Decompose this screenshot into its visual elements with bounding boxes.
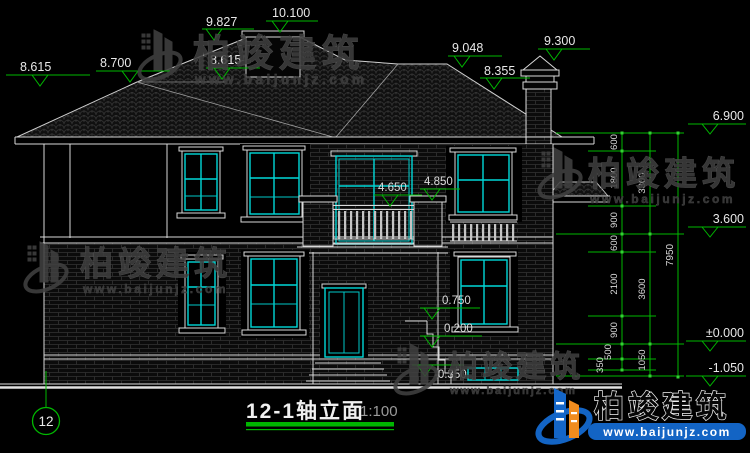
marker-minus1050: -1.050 (686, 361, 746, 386)
svg-text:10.100: 10.100 (272, 6, 310, 20)
svg-text:600: 600 (609, 134, 620, 150)
brand-url: www.baijunjz.com (602, 425, 731, 439)
svg-text:柏竣建筑: 柏竣建筑 (448, 350, 584, 384)
window-2f-2 (240, 144, 310, 224)
axis-number: 12 (38, 414, 53, 429)
svg-text:9.048: 9.048 (452, 41, 483, 55)
svg-text:3600: 3600 (637, 278, 648, 299)
balcony-railing (331, 206, 417, 245)
window-2f-1 (176, 145, 226, 222)
svg-text:9.827: 9.827 (206, 15, 237, 29)
brand-logo-icon (534, 388, 594, 448)
svg-text:±0.000: ±0.000 (706, 326, 744, 340)
svg-text:3.600: 3.600 (713, 212, 744, 226)
marker-3600: 3.600 (688, 212, 746, 237)
marker-9300: 9.300 (538, 34, 590, 60)
entrance-door (320, 283, 368, 358)
eave-fascia (15, 137, 594, 144)
brand-name: 柏竣建筑 (594, 390, 730, 424)
svg-text:8.700: 8.700 (100, 56, 131, 70)
window-guard-rail (450, 222, 517, 241)
window-2f-3 (446, 146, 522, 241)
title-underline-thin (246, 429, 394, 430)
view-title: 12-1轴立面 (246, 399, 365, 423)
title-block: 12-1轴立面 1:100 (246, 399, 398, 430)
svg-text:900: 900 (609, 322, 620, 338)
svg-text:-1.050: -1.050 (709, 361, 744, 375)
svg-text:8.355: 8.355 (484, 64, 515, 78)
title-underline-thick (246, 422, 394, 427)
svg-text:www.baijunjz.com: www.baijunjz.com (589, 192, 735, 206)
balcony-pier-left (299, 196, 337, 246)
svg-text:0.750: 0.750 (442, 295, 471, 307)
window-1f-2 (241, 250, 309, 338)
svg-text:0.200: 0.200 (444, 323, 473, 335)
marker-6900: 6.900 (688, 109, 746, 134)
brand-logo: 柏竣建筑 www.baijunjz.com (534, 388, 746, 448)
svg-text:9.300: 9.300 (544, 34, 575, 48)
elevation-drawing-canvas: 600 1800 900 600 2100 900 500 350 3300 3… (0, 0, 750, 453)
svg-text:6.900: 6.900 (713, 109, 744, 123)
svg-text:900: 900 (609, 212, 620, 228)
svg-text:600: 600 (609, 235, 620, 251)
svg-text:www.baijunjz.com: www.baijunjz.com (82, 282, 228, 296)
svg-text:1050: 1050 (637, 349, 648, 370)
svg-text:柏竣建筑: 柏竣建筑 (588, 155, 740, 192)
cad-drawing: 600 1800 900 600 2100 900 500 350 3300 3… (0, 0, 750, 453)
watermark-right: 柏竣建筑 www.baijunjz.com (535, 148, 740, 206)
svg-text:柏竣建筑: 柏竣建筑 (193, 32, 365, 74)
svg-text:4.850: 4.850 (424, 176, 453, 188)
marker-0000: ±0.000 (686, 326, 746, 351)
marker-8615-left: 8.615 (6, 60, 90, 86)
view-scale: 1:100 (360, 403, 398, 420)
svg-text:4.650: 4.650 (378, 182, 407, 194)
svg-text:7950: 7950 (665, 243, 676, 266)
marker-10100: 10.100 (266, 6, 318, 32)
balcony-pier-right (410, 196, 446, 246)
svg-text:www.baijunjz.com: www.baijunjz.com (194, 72, 368, 87)
svg-text:350: 350 (595, 357, 606, 373)
svg-text:柏竣建筑: 柏竣建筑 (80, 245, 232, 282)
svg-text:8.615: 8.615 (20, 60, 51, 74)
svg-text:2100: 2100 (609, 273, 620, 294)
